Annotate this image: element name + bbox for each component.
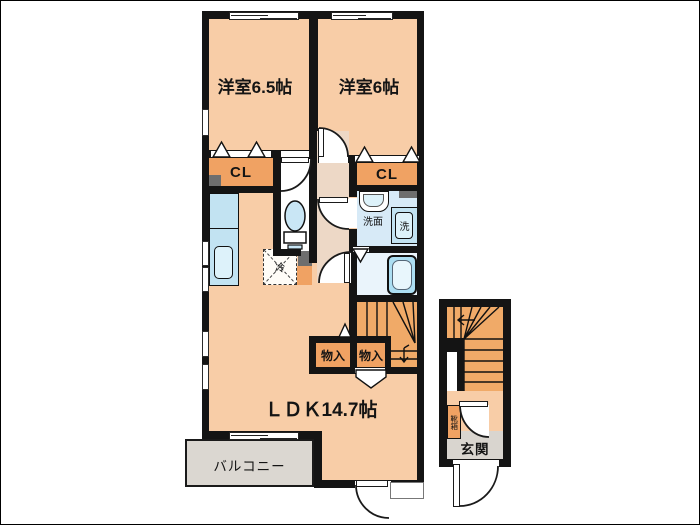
entry-hall-door-arc <box>460 405 489 437</box>
shoe-cabinet-label: 靴箱 <box>447 406 461 438</box>
bath-door-mark <box>353 249 368 262</box>
floor-plan: バルコニー CL CL 物入 物入 玄関 靴箱 冷 <box>0 0 700 525</box>
washroom-duct <box>399 191 417 198</box>
kitchen-counter-divider <box>210 228 238 229</box>
bedroom1-label: 洋室6.5帖 <box>195 73 315 97</box>
refrigerator-label: 冷 <box>263 260 297 274</box>
counter-box <box>297 266 312 285</box>
wall-toilet-south <box>273 249 301 256</box>
wall-storage-div1 <box>350 343 357 367</box>
wall-closet1-south <box>202 186 281 193</box>
hall-ldk-door-leaf <box>344 253 350 283</box>
closet2-door-mark-1 <box>356 147 373 162</box>
side-window-5 <box>202 364 209 390</box>
wall-bath-south <box>349 295 424 302</box>
toilet-fixture <box>282 199 308 251</box>
storage2-label: 物入 <box>357 343 385 367</box>
bedroom2-label: 洋室6帖 <box>309 73 429 97</box>
washroom-door-opening <box>349 198 357 228</box>
wall-toilet-west <box>273 150 281 256</box>
washroom-door-leaf <box>319 197 348 203</box>
storage1-label: 物入 <box>316 343 350 367</box>
closet2-label: CL <box>357 163 417 185</box>
wall-bedroom-divider <box>309 11 318 131</box>
ldk-exit-door-arc <box>356 485 389 518</box>
closet2-door-mark-2 <box>403 147 420 162</box>
side-window-2 <box>202 241 209 266</box>
wall-stair-stub <box>447 338 464 352</box>
bathtub <box>387 255 417 295</box>
entrance-label: 玄関 <box>447 439 503 457</box>
entry-hall-door-leaf <box>459 401 488 407</box>
bedroom2-door-leaf <box>318 128 324 157</box>
toilet-door-leaf <box>281 157 309 163</box>
storage-door-mark <box>356 370 386 388</box>
washbasin-bowl <box>363 194 384 207</box>
wall-entry-north <box>439 299 511 307</box>
wall-hall-west <box>309 131 317 263</box>
wall-entry-west <box>439 299 447 467</box>
bedroom2-door-opening <box>319 156 348 163</box>
closet1-door-mark-1 <box>213 142 230 157</box>
washroom-label: 洗面 <box>355 213 391 227</box>
exit-step <box>390 482 424 499</box>
under-stair-notch <box>447 352 457 391</box>
balcony-label: バルコニー <box>185 456 314 474</box>
front-door-leaf <box>453 464 460 507</box>
bedroom2-window <box>331 12 393 20</box>
closet1-door-mark-2 <box>248 142 265 157</box>
toilet-door-arc <box>281 159 311 191</box>
stairs-upper-arrow <box>391 343 417 367</box>
ldk-label: ＬＤＫ14.7帖 <box>231 395 411 421</box>
bedroom1-window <box>229 12 299 20</box>
bathtub-inner <box>392 260 412 290</box>
kitchen-sink <box>214 246 233 279</box>
washroom-door-arc <box>318 199 349 229</box>
wall-stair-stub-v <box>457 352 464 391</box>
wall-entry-east <box>503 299 511 467</box>
washer-label: 洗 <box>391 218 418 232</box>
side-window-4 <box>202 331 209 357</box>
washbasin <box>359 191 389 212</box>
kitchen-counter <box>209 193 239 286</box>
front-door-arc <box>460 466 498 506</box>
balcony-sliding-door <box>229 432 299 440</box>
side-window-1 <box>202 109 209 136</box>
ldk-exit-door-leaf <box>356 480 388 487</box>
stairs-door-mark <box>339 324 351 337</box>
wall-closet2-south <box>349 185 424 191</box>
side-window-3 <box>202 267 209 292</box>
wall-storage-div2 <box>385 343 391 367</box>
